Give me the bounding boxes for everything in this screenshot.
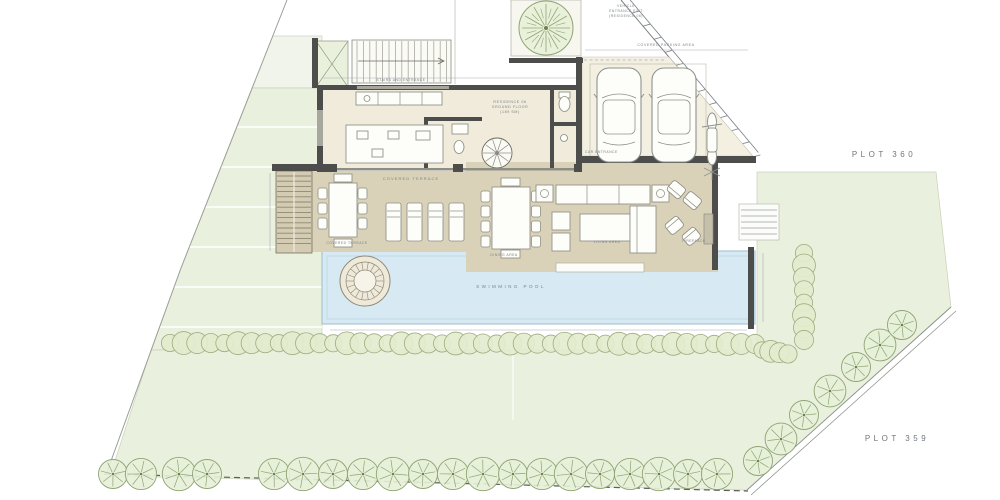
tree [376,457,409,490]
tree [162,457,195,490]
wall-court [509,58,583,63]
spiral-stair [482,138,512,168]
label-residence-2: GROUND FLOOR [492,105,529,109]
label-vehicle-entrance-3: (RESIDENCE 06) [609,14,643,18]
tree [193,460,222,489]
label-residence-3: (189 SM) [500,110,520,114]
label-vehicle-entrance-2: ENTRANCE EXIT [609,9,643,13]
label-living-area: LIVING AREA [594,240,621,244]
tree [499,460,528,489]
outdoor-dining-table [329,183,357,237]
wall-pool-right [748,247,754,329]
armchair-square-1 [552,212,570,230]
label-plot-359: PLOT 359 [865,434,929,443]
label-plot-360: PLOT 360 [852,150,916,159]
hedge [161,332,764,356]
pool-step-strip [556,263,644,272]
tree [614,458,645,489]
wc2-basin [561,135,568,142]
wall-wc-v [550,85,554,170]
side-table-right [652,185,669,202]
wall-post-1 [453,164,463,172]
sun-lounger [386,203,401,241]
coffee-table [580,214,630,241]
tree [790,401,819,430]
wall-terrace-top [272,164,318,171]
tree [319,460,348,489]
tree [554,457,587,490]
label-covered-parking: COVERED PARKING AREA [637,43,694,47]
label-stairs-entrance: STAIRS AND ENTRANCE [377,78,426,82]
tree [258,458,289,489]
wc2-toilet [559,97,570,112]
sun-lounger [449,203,464,241]
tree [888,311,917,340]
label-car-entrance: CAR ENTRANCE [585,150,618,154]
tree [466,457,499,490]
window-top [357,86,449,89]
chaise [630,206,656,253]
wall-stub-left [317,164,337,172]
tree [409,460,438,489]
tree [125,458,156,489]
kitchen-sink [364,96,370,102]
tree [437,458,468,489]
tree [674,460,703,489]
wc-fixture [452,124,468,134]
label-fireplace: FIREPLACE [682,239,706,243]
label-vehicle-entrance-1: VEHICLE [617,4,635,8]
site-plan-canvas: VEHICLE ENTRANCE EXIT (RESIDENCE 06) COV… [0,0,1000,500]
site-plan: VEHICLE ENTRANCE EXIT (RESIDENCE 06) COV… [0,0,1000,500]
wall-interior-h [424,117,482,121]
wc-toilet [454,141,464,154]
label-dining-area: DINING AREA [490,253,518,257]
tree [842,353,871,382]
wall-garage-left [576,57,582,164]
tree [347,458,378,489]
tree [744,447,773,476]
wall-skylight-left [312,38,318,88]
window-left [317,110,323,146]
car [594,68,644,162]
car [649,68,699,162]
tree [765,423,797,455]
dining-table [492,187,530,249]
garden-steps [739,204,779,240]
sliding-door-kitchen [337,168,455,171]
sun-lounger [407,203,422,241]
tree [586,460,615,489]
wall-post-2 [574,164,582,172]
tree [814,375,846,407]
tree [526,458,557,489]
tree [701,458,732,489]
label-covered-terrace: COVERED TERRACE [383,176,439,181]
armchair-square-2 [552,233,570,251]
spa-circle [340,256,390,306]
courtyard-tree [519,1,573,55]
wall-wc-h [550,122,580,126]
tree [642,457,675,490]
sliding-door-living [463,168,576,171]
label-covered-terrace-2: COVERED TERRACE [326,241,368,245]
sofa [556,185,650,204]
tree [286,457,319,490]
wall-top [317,85,582,90]
label-swimming-pool: SWIMMING POOL [476,284,546,289]
sun-lounger [428,203,443,241]
tree [99,460,128,489]
side-table-left [536,185,553,202]
label-residence-1: RESIDENCE 06 [493,100,526,104]
